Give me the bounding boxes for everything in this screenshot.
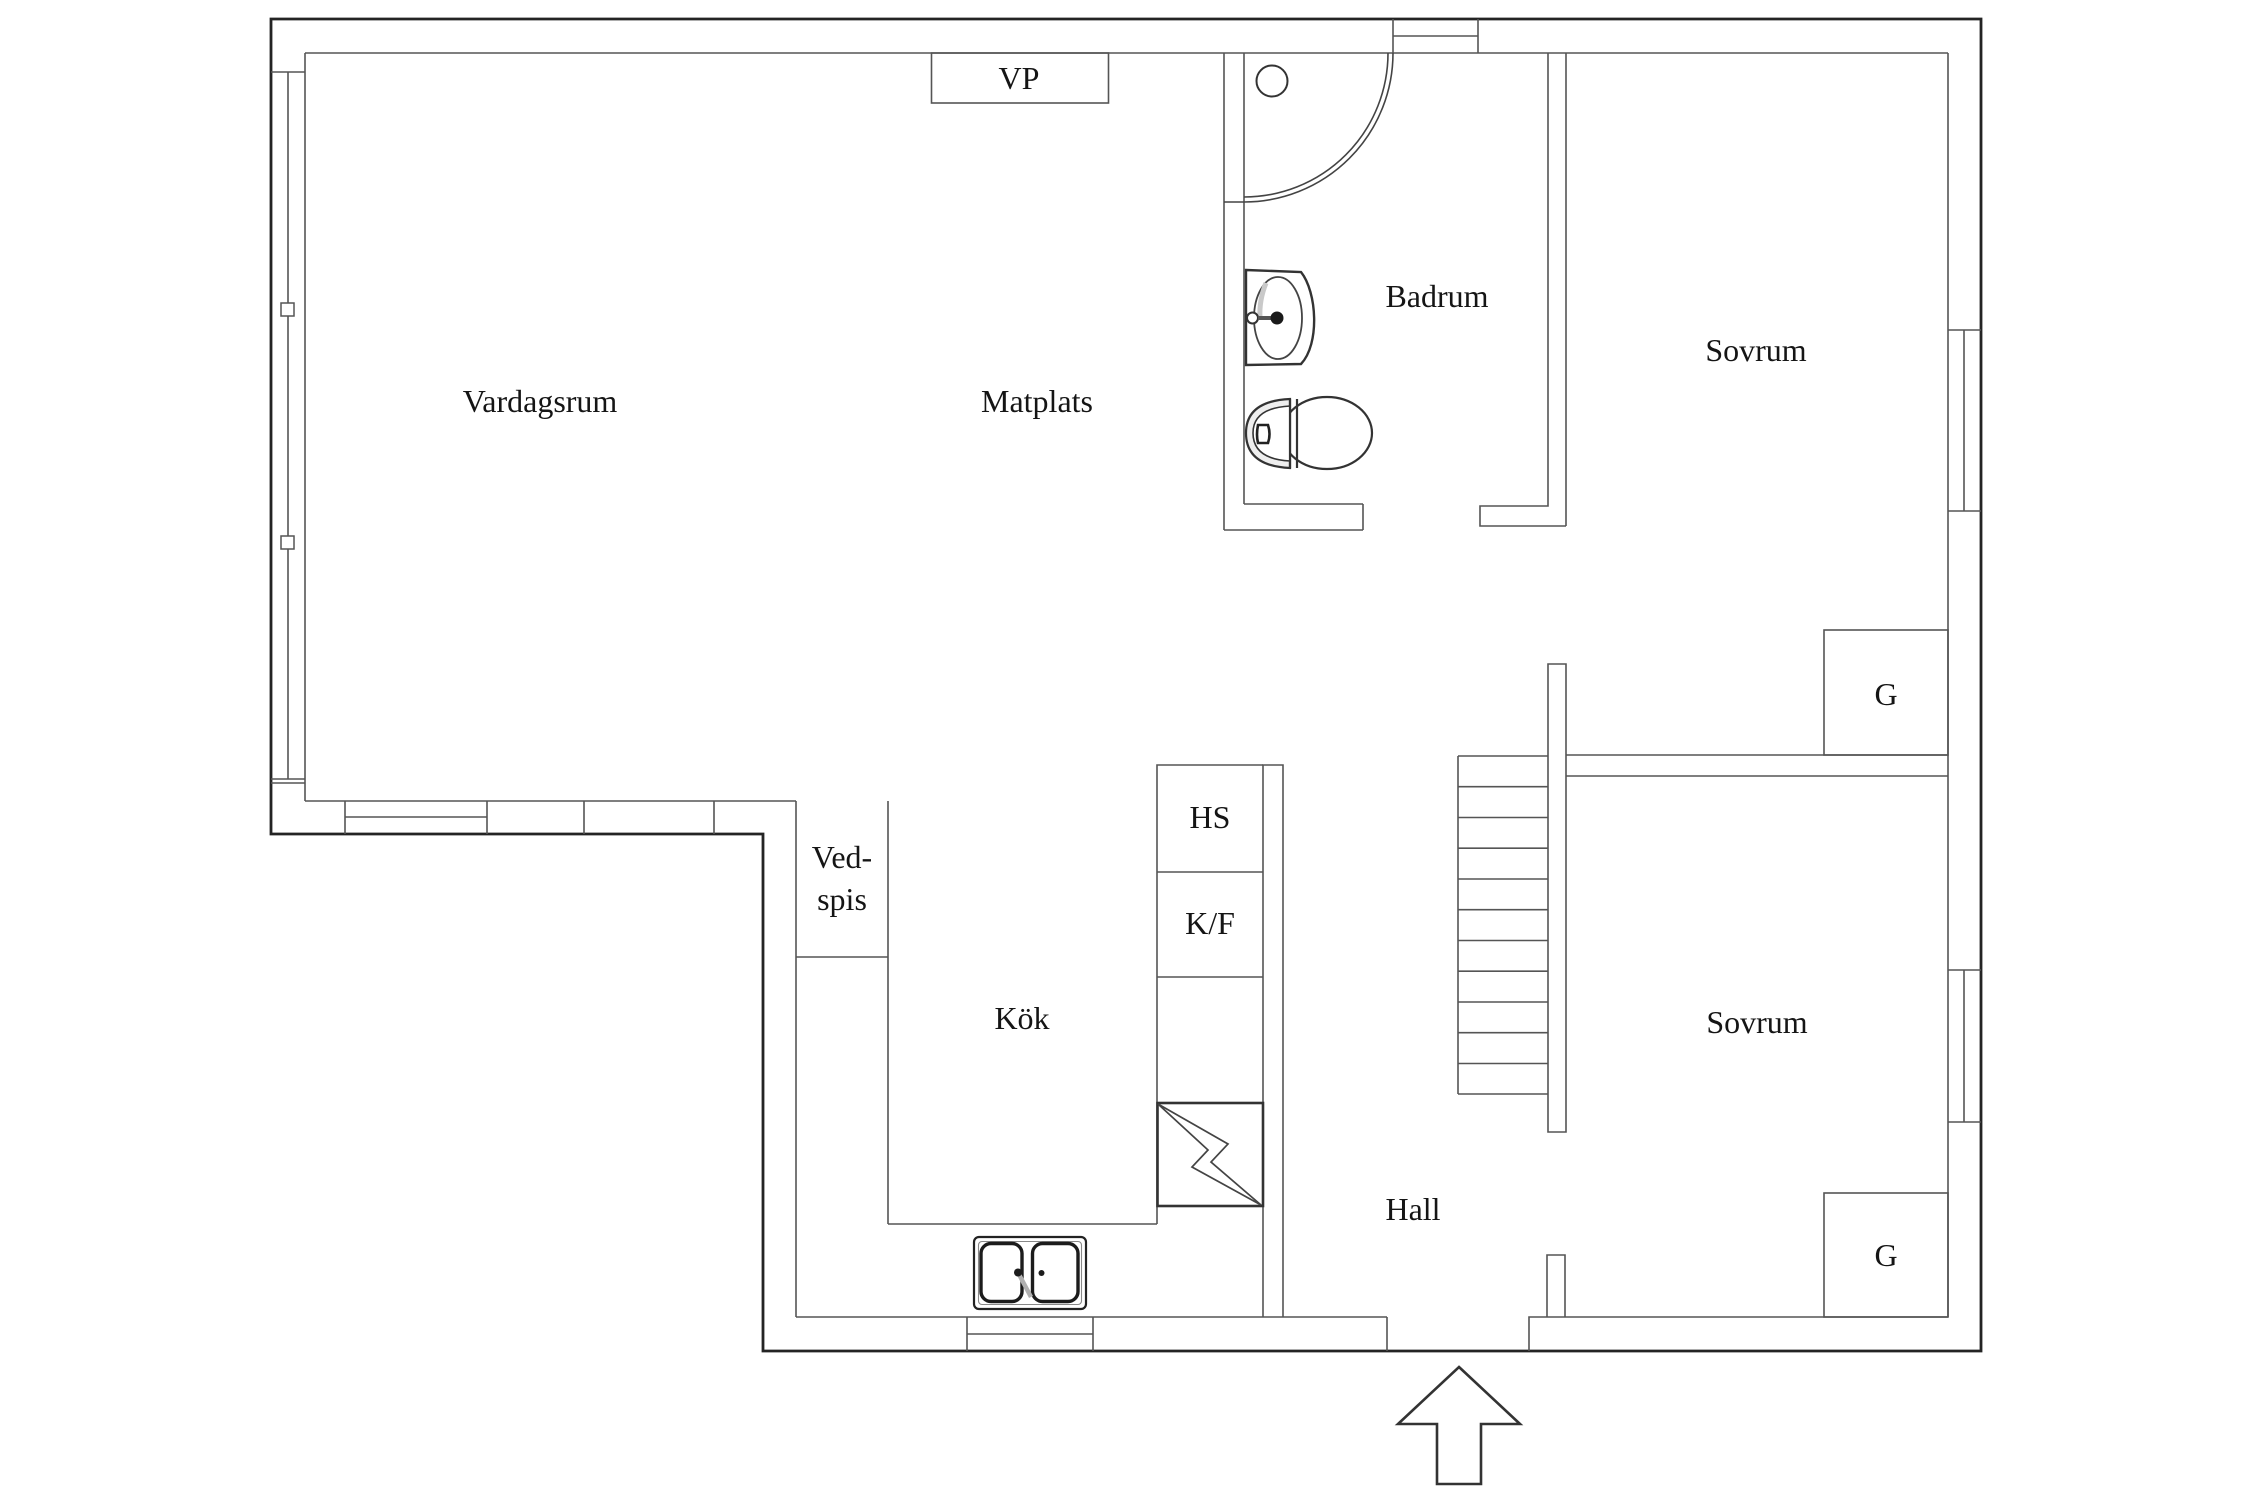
svg-text:Hall: Hall (1385, 1191, 1440, 1227)
svg-text:Matplats: Matplats (981, 383, 1093, 419)
svg-text:Badrum: Badrum (1385, 278, 1488, 314)
svg-text:spis: spis (817, 881, 867, 917)
svg-text:Ved-: Ved- (812, 839, 872, 875)
svg-text:G: G (1874, 676, 1897, 712)
svg-text:K/F: K/F (1185, 905, 1235, 941)
svg-text:Sovrum: Sovrum (1706, 1004, 1807, 1040)
svg-text:Sovrum: Sovrum (1705, 332, 1806, 368)
svg-text:G: G (1874, 1237, 1897, 1273)
svg-text:HS: HS (1190, 799, 1231, 835)
svg-text:Vardagsrum: Vardagsrum (463, 383, 618, 419)
svg-text:Kök: Kök (994, 1000, 1049, 1036)
svg-text:VP: VP (999, 60, 1040, 96)
